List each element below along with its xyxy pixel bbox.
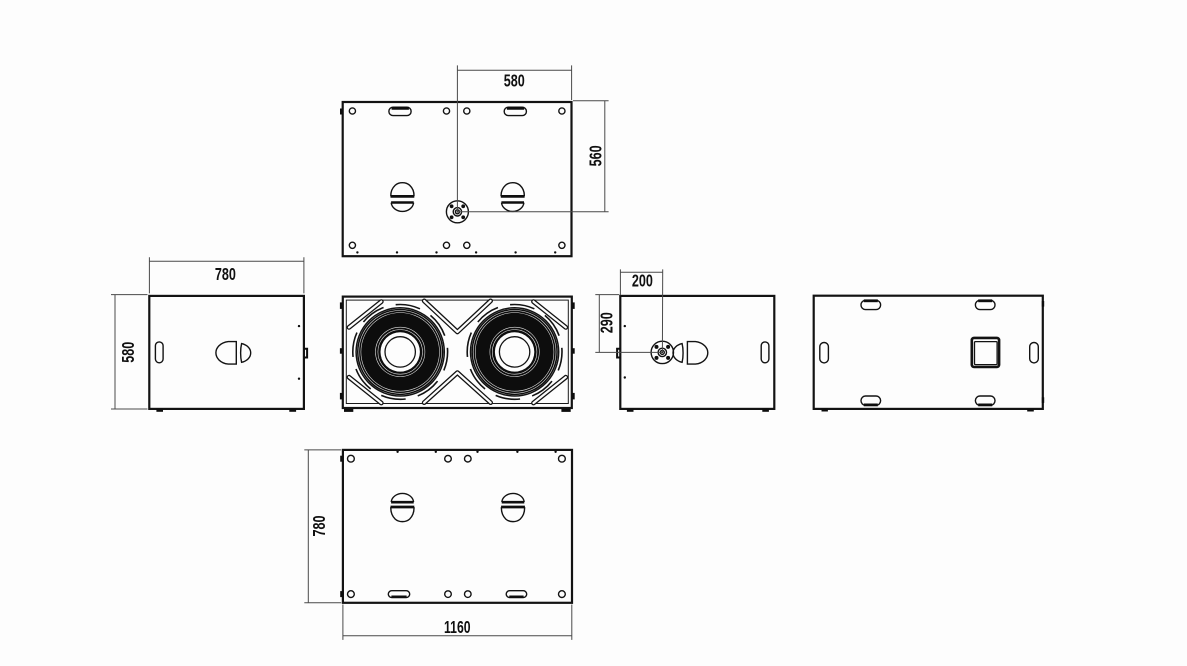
svg-text:780: 780 — [215, 264, 236, 284]
svg-text:580: 580 — [504, 71, 525, 91]
svg-text:780: 780 — [309, 515, 329, 536]
svg-text:200: 200 — [632, 271, 653, 291]
svg-text:580: 580 — [118, 342, 138, 363]
svg-text:290: 290 — [596, 312, 616, 333]
svg-text:1160: 1160 — [444, 617, 471, 637]
svg-text:560: 560 — [585, 145, 605, 166]
